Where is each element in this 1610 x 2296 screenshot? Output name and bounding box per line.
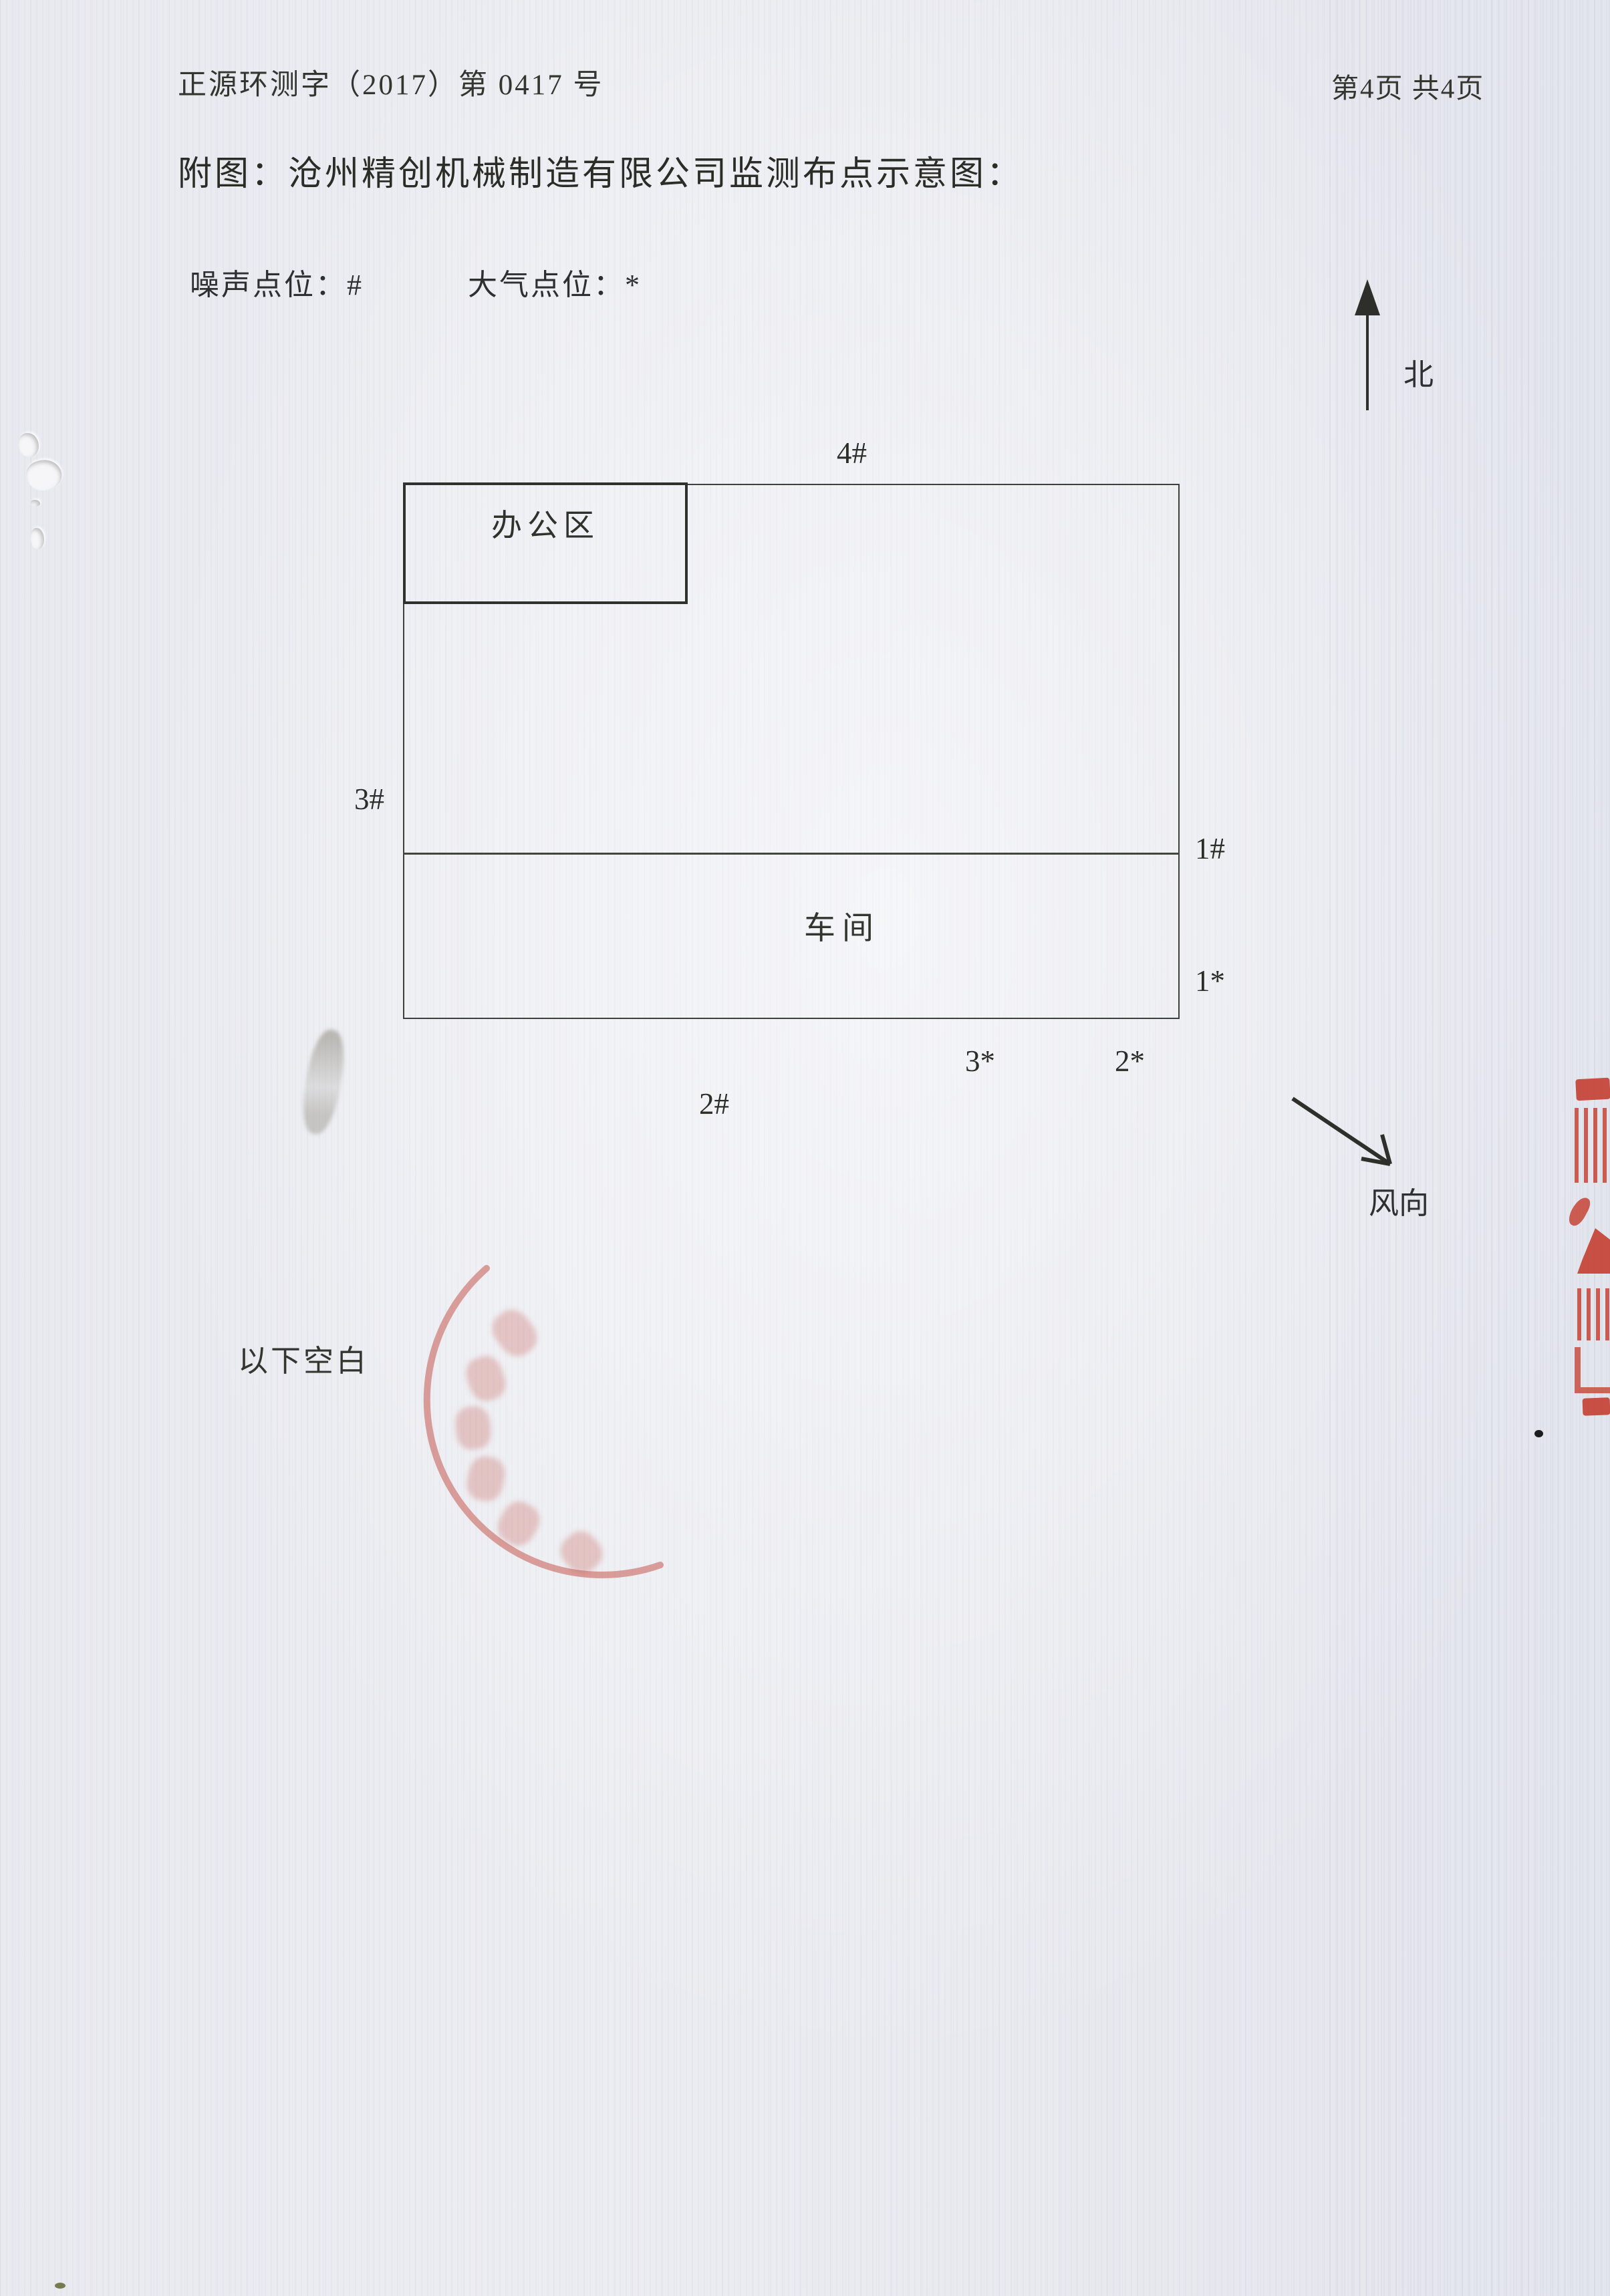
legend-air-points: 大气点位：*	[468, 261, 642, 303]
footer-blank-note: 以下空白	[238, 1336, 369, 1380]
office-area-box: 办公区	[403, 482, 688, 604]
wind-direction-arrow-icon	[1283, 1089, 1410, 1183]
scanned-report-page: 正源环测字（2017）第 0417 号 第4页 共4页 附图：沧州精创机械制造有…	[0, 0, 1610, 2296]
gray-smudge	[297, 1027, 350, 1137]
edge-stamp-fragment	[1583, 1397, 1610, 1415]
noise-point-1: 1#	[1195, 831, 1225, 866]
edge-stamp-fragment	[1575, 1108, 1610, 1183]
north-label: 北	[1403, 350, 1434, 394]
paper-damage-spot	[31, 500, 40, 507]
wind-direction-label: 风向	[1369, 1179, 1429, 1222]
red-circular-stamp	[374, 1230, 722, 1604]
workshop-label: 车间	[804, 902, 880, 948]
office-area-label: 办公区	[491, 501, 599, 601]
air-point-2: 2*	[1115, 1044, 1145, 1079]
workshop-divider-line	[403, 853, 1180, 855]
page-indicator: 第4页 共4页	[1331, 65, 1484, 106]
noise-point-4: 4#	[837, 436, 867, 470]
north-arrow-icon	[1347, 277, 1401, 417]
air-point-3: 3*	[965, 1044, 995, 1079]
paper-damage-spot	[31, 528, 44, 549]
paper-damage-spot	[19, 433, 39, 457]
noise-point-3: 3#	[354, 782, 384, 817]
edge-stamp-fragment	[1575, 1078, 1610, 1101]
doc-number: 正源环测字（2017）第 0417 号	[178, 61, 604, 103]
edge-stamp-fragment	[1577, 1288, 1610, 1340]
legend-noise-points: 噪声点位：#	[190, 261, 364, 303]
page-title: 附图：沧州精创机械制造有限公司监测布点示意图：	[178, 146, 1023, 195]
edge-stamp-fragment	[1575, 1347, 1610, 1393]
ink-speck	[1534, 1430, 1543, 1437]
air-point-1: 1*	[1195, 964, 1225, 998]
noise-point-2: 2#	[699, 1087, 729, 1121]
ink-speck	[55, 2283, 65, 2289]
paper-damage-spot	[23, 455, 65, 495]
